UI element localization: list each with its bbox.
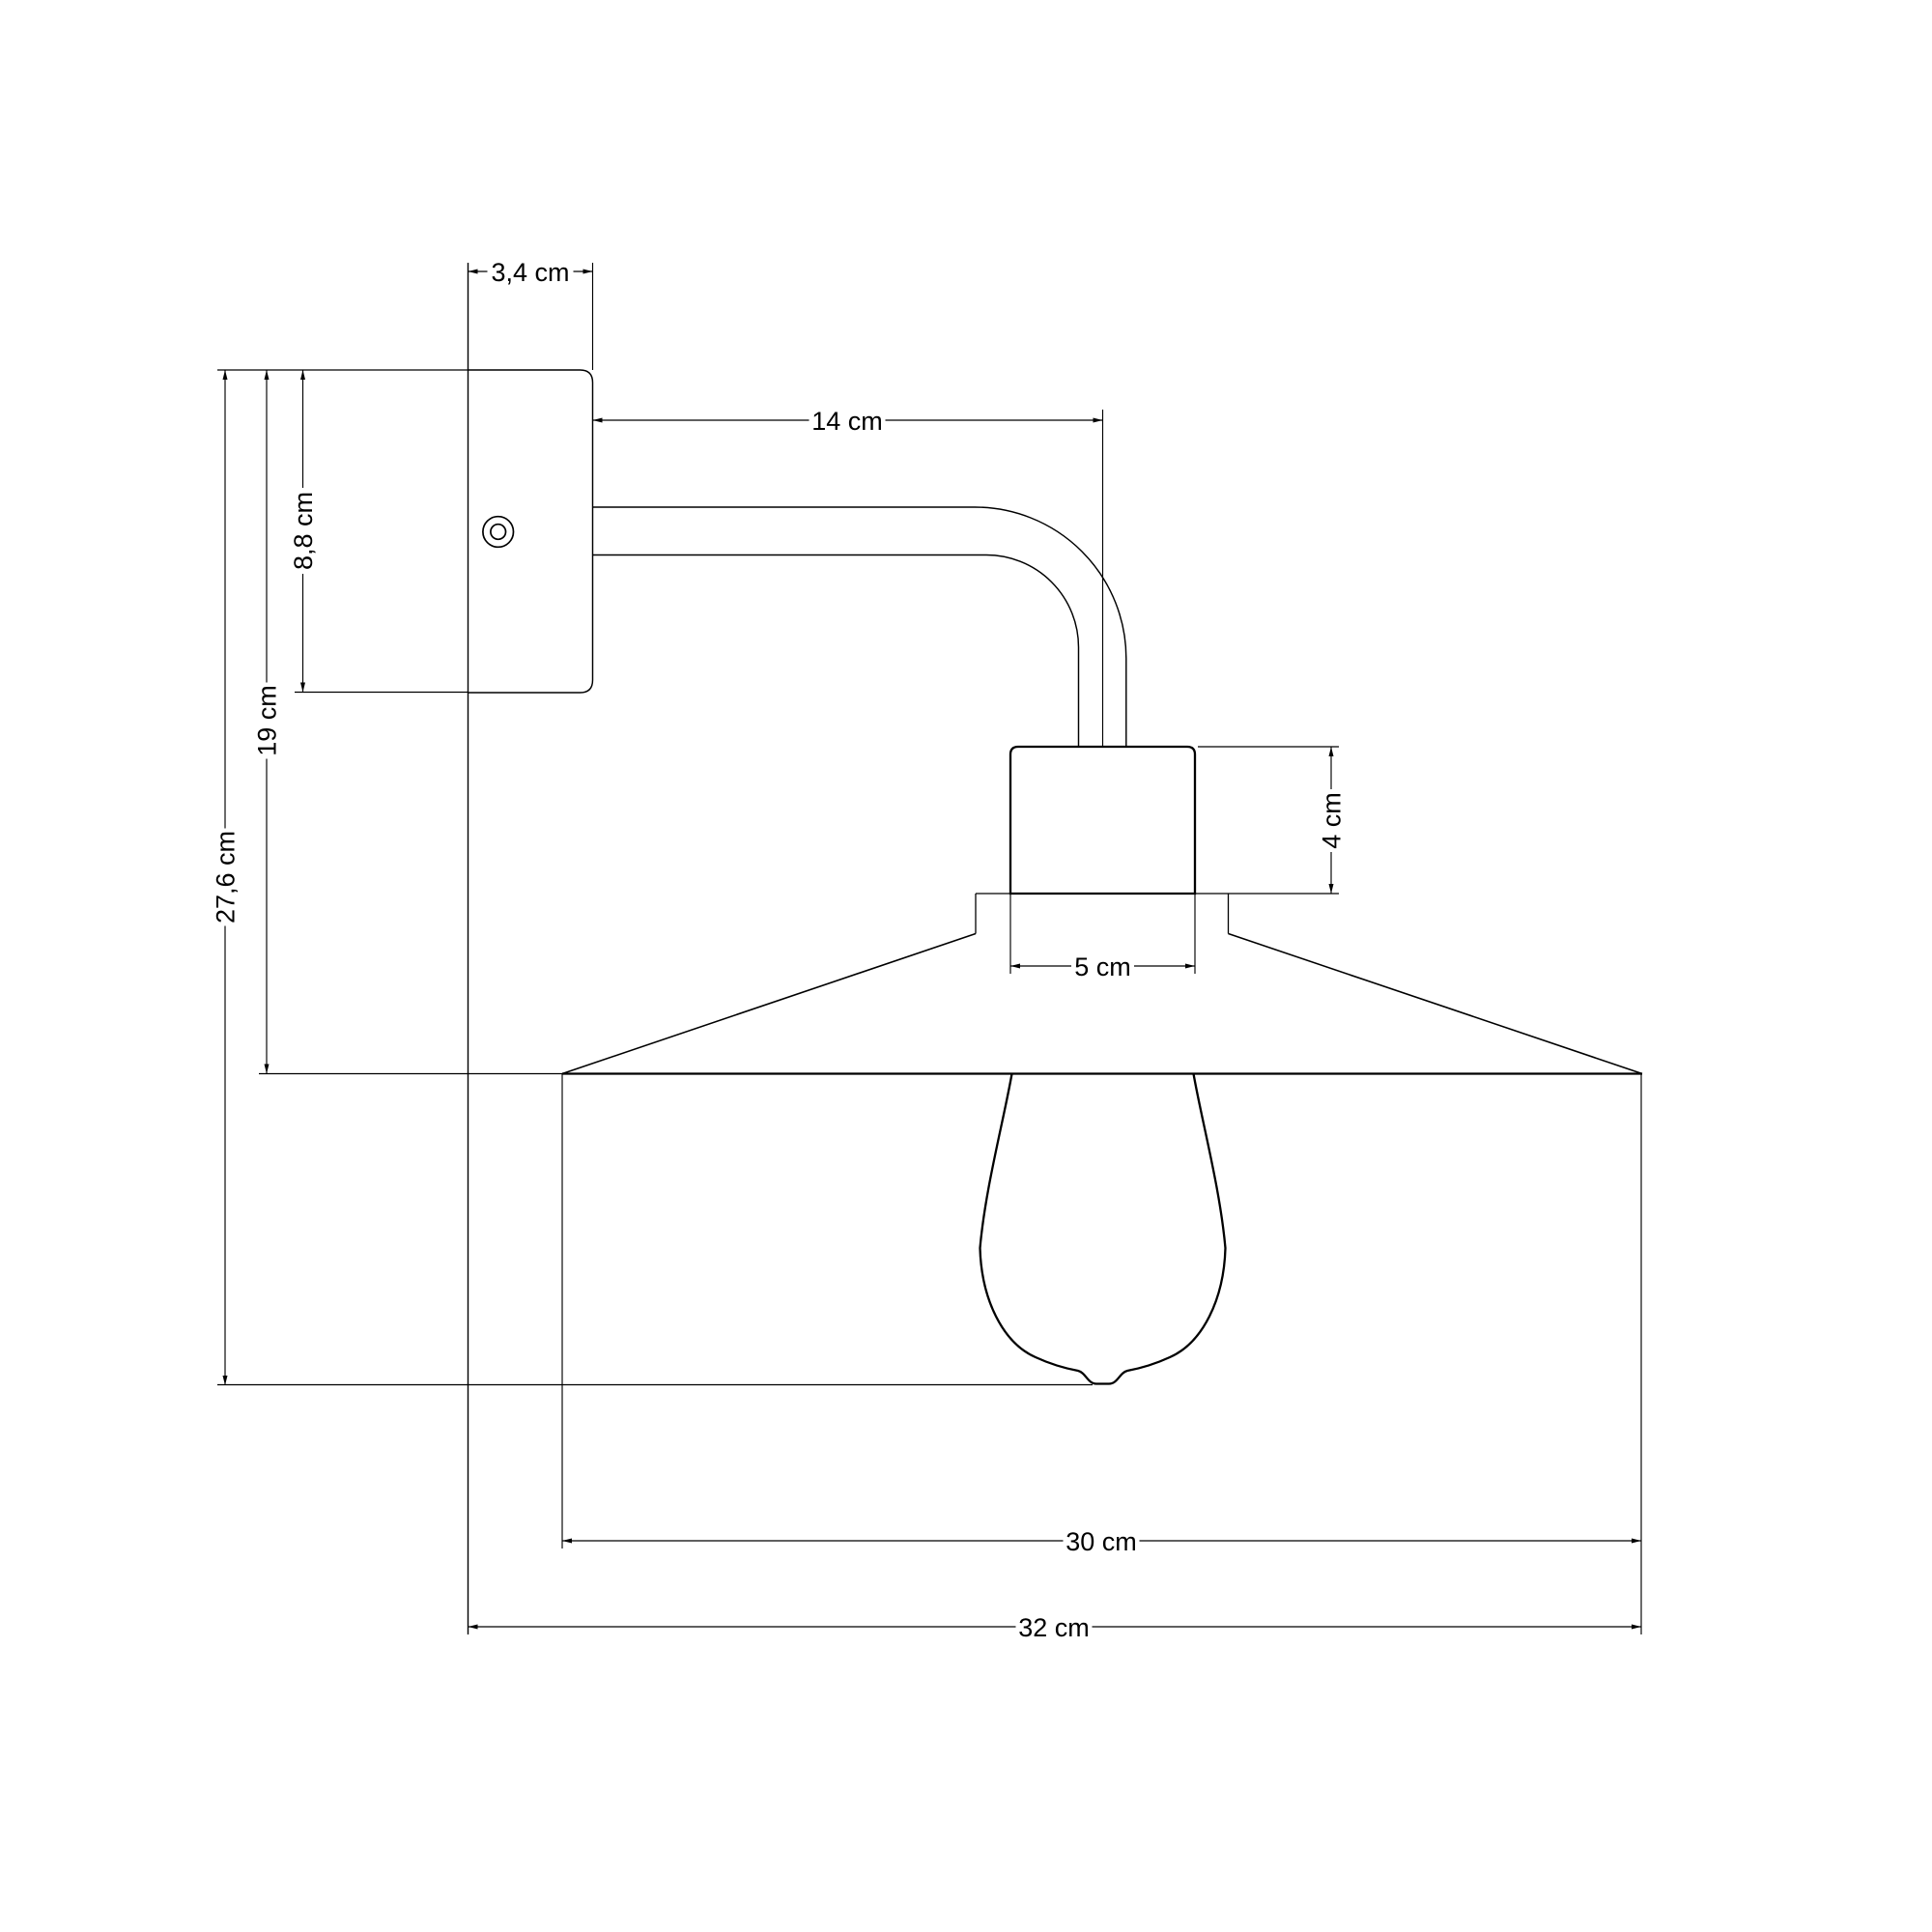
svg-text:30 cm: 30 cm	[1065, 1527, 1137, 1556]
svg-text:4 cm: 4 cm	[1318, 792, 1347, 849]
svg-text:8,8 cm: 8,8 cm	[289, 492, 318, 570]
svg-text:14 cm: 14 cm	[811, 407, 883, 436]
svg-text:32 cm: 32 cm	[1018, 1613, 1090, 1642]
svg-text:3,4 cm: 3,4 cm	[491, 258, 569, 287]
svg-text:19 cm: 19 cm	[253, 685, 282, 756]
svg-text:5 cm: 5 cm	[1074, 952, 1131, 981]
svg-text:27,6 cm: 27,6 cm	[212, 831, 241, 923]
